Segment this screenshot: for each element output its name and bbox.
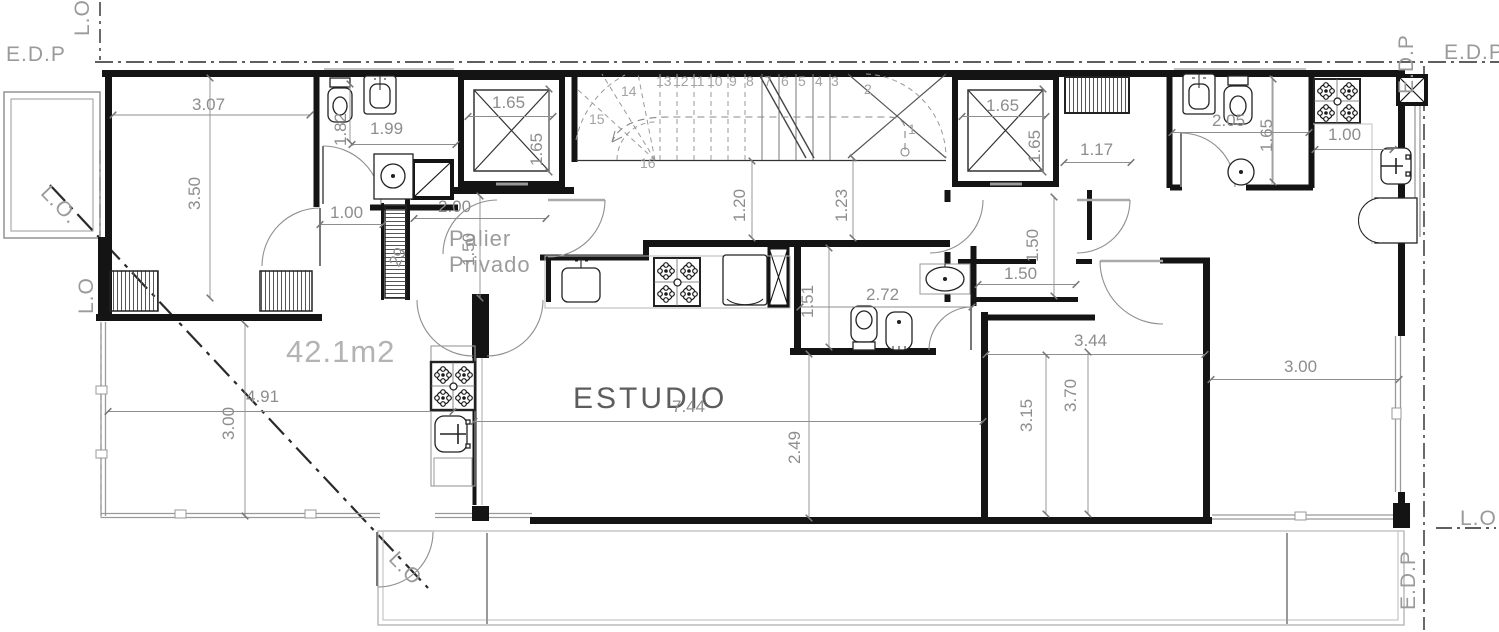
area-label: 42.1m2 (286, 336, 395, 367)
stair-step-number: 1 (908, 122, 916, 136)
dim-terrace-width: 4.91 (246, 388, 279, 405)
stair-step-number: 6 (781, 74, 789, 88)
bidet (886, 312, 912, 350)
dim-hall2-width: 1.17 (1080, 141, 1113, 158)
stair-step-number: 4 (815, 74, 823, 88)
sink (435, 416, 470, 452)
lower-terrace (378, 531, 1404, 625)
oval-sink (920, 264, 970, 294)
stair-step-number: 12 (673, 74, 689, 88)
dim-hall-left: 1.20 (731, 189, 748, 222)
fridge (723, 255, 767, 305)
stair-step-number: 11 (690, 74, 705, 88)
stair-step-number: 15 (589, 112, 605, 126)
stove (654, 258, 700, 306)
toilet (851, 306, 877, 350)
dim-palier-width: 2.00 (438, 198, 471, 215)
dim-kitchen-right: 1.00 (1328, 126, 1361, 143)
dim-bath1-depth: 1.82 (332, 113, 349, 146)
sink (1381, 148, 1411, 184)
dim-hall-right: 1.23 (833, 189, 850, 222)
dim-bedroom-width: 3.07 (192, 96, 225, 113)
lo-label-bottom-right: L.O (1460, 508, 1497, 529)
stair-step-number: 8 (746, 74, 754, 88)
dim-balcony-width: 3.00 (1284, 358, 1317, 375)
stove (431, 362, 475, 410)
dim-terrace-depth: 3.00 (220, 407, 237, 440)
dim-bedroom2-depth: 3.70 (1062, 379, 1079, 412)
stair-step-number: 13 (656, 74, 672, 88)
stair-walkline (612, 117, 905, 150)
floor-plan: L.O E.D.P L.O. L.O L.O E.D.P E.D.P L.O E… (0, 0, 1499, 632)
dim-estudio-depth: 2.49 (786, 431, 803, 464)
stair-step-number: 9 (729, 74, 737, 88)
closet-hatch (260, 271, 312, 311)
fixtures (328, 74, 1417, 486)
dim-palier2-depth: 1.50 (1024, 229, 1041, 262)
dim-bath3-width: 2.05 (1212, 112, 1245, 129)
stair-step-number: 3 (831, 74, 839, 88)
washer (1359, 198, 1417, 243)
dim-bath1-width: 1.99 (370, 120, 403, 137)
stair-step-number: 2 (864, 82, 872, 96)
stair-step-number: 10 (707, 74, 723, 88)
edp-label-top-left: E.D.P (6, 44, 66, 65)
dim-bedroom-depth: 3.50 (186, 177, 203, 210)
dim-bedroom2-width: 3.44 (1074, 332, 1107, 349)
dim-palier-depth: 1.50 (460, 233, 477, 266)
dim-bath2-width: 2.72 (866, 286, 899, 303)
edp-label-bottom-right: E.D.P (1398, 550, 1419, 610)
lo-label-top-left: L.O (72, 0, 93, 36)
stair-step-number: 14 (621, 84, 637, 98)
stair-step-number: 16 (640, 156, 656, 170)
closet-hatch (110, 271, 158, 311)
shower (1228, 159, 1254, 185)
dim-bath2-depth: 1.51 (799, 285, 816, 318)
dim-estudio-width: 7.44 (672, 398, 705, 415)
shower (374, 154, 413, 199)
dim-palier2-width: 1.50 (1004, 265, 1037, 282)
vent-hatch (1065, 77, 1129, 113)
kitchen-sink (562, 258, 600, 302)
sink (1183, 74, 1215, 114)
dim-lift-left-w: 1.65 (492, 94, 525, 111)
edp-label-top-right: E.D.P (1444, 42, 1499, 63)
edp-label-top-right-v: E.D.P (1396, 34, 1417, 94)
dim-bath3-depth: 1.65 (1258, 119, 1275, 152)
left-balcony (4, 92, 100, 238)
stair-step-number: 5 (798, 74, 806, 88)
dim-lift-left-d: 1.65 (528, 133, 545, 166)
stove (1314, 79, 1360, 123)
dim-bedroom-door: 1.00 (330, 204, 363, 221)
stair-step-number: 7 (764, 74, 772, 88)
dim-lift-right-w: 1.65 (986, 97, 1019, 114)
lo-label-left: L.O (76, 277, 97, 314)
dim-bedroom2-inner: 3.15 (1018, 399, 1035, 432)
sink (364, 76, 396, 114)
dim-lift-right-d: 1.65 (1026, 130, 1043, 163)
